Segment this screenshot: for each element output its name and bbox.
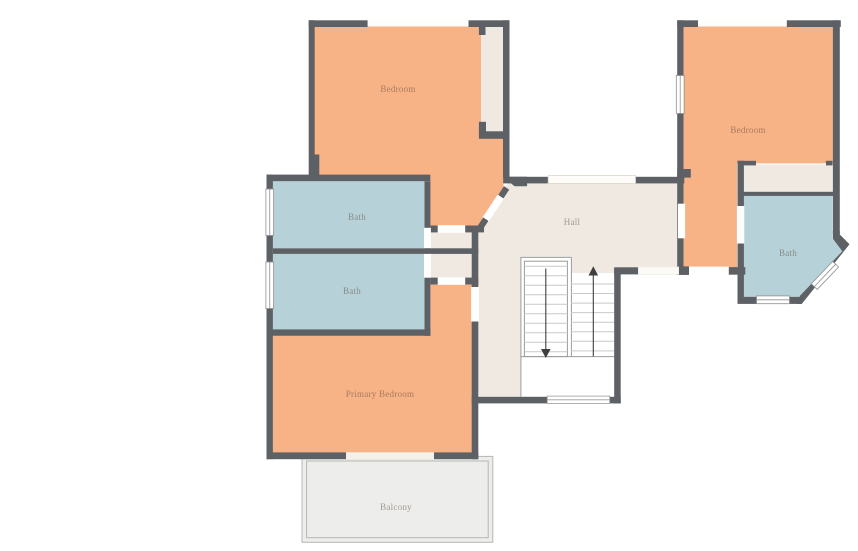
svg-text:Bath: Bath bbox=[343, 286, 361, 296]
svg-text:Bedroom: Bedroom bbox=[380, 84, 415, 94]
svg-text:Bath: Bath bbox=[348, 212, 366, 222]
svg-text:Bath: Bath bbox=[779, 248, 797, 258]
svg-text:Primary Bedroom: Primary Bedroom bbox=[346, 389, 415, 399]
svg-text:Hall: Hall bbox=[564, 217, 581, 227]
svg-text:Bedroom: Bedroom bbox=[730, 125, 765, 135]
svg-text:Balcony: Balcony bbox=[380, 502, 412, 512]
